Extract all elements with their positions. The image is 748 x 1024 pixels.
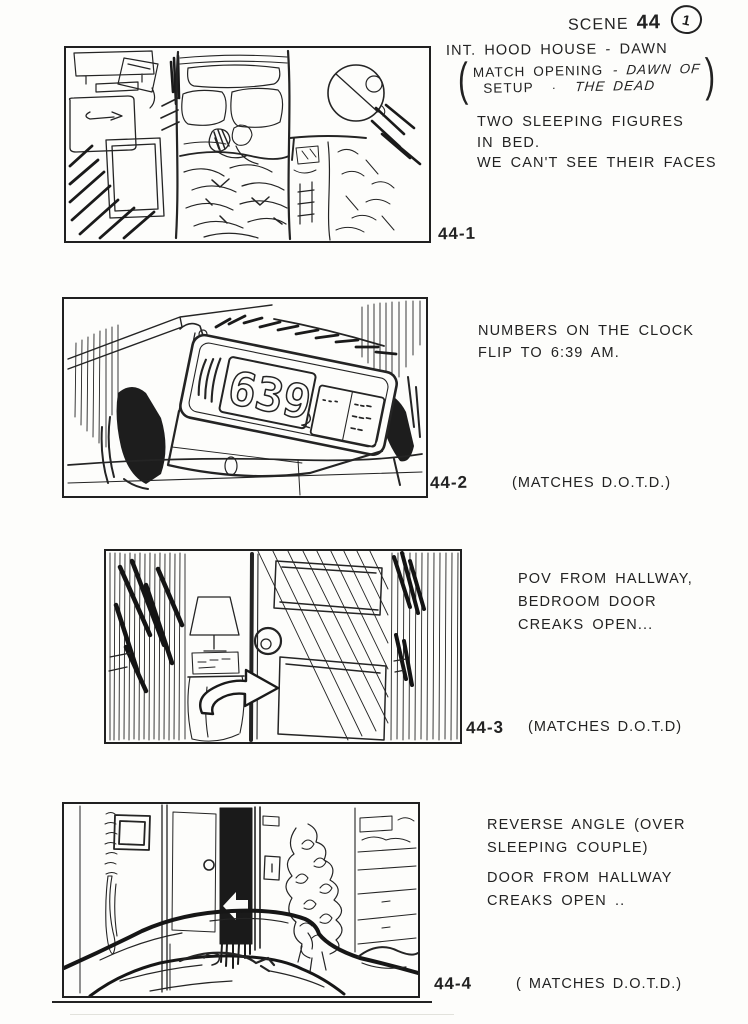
caption-line: IN BED. (477, 133, 717, 154)
caption-paragraph-gap (487, 860, 686, 867)
shot-label-44-2: 44-2 (430, 473, 468, 494)
scene-header: SCENE 44 (568, 11, 661, 36)
scene-word: SCENE (568, 16, 629, 35)
storyboard-panel-44-4 (62, 802, 420, 998)
storyboard-panel-44-1 (64, 46, 431, 243)
caption-shot-44-1: TWO SLEEPING FIGURES IN BED. WE CAN'T SE… (477, 112, 717, 174)
caption-line: REVERSE ANGLE (OVER (487, 814, 686, 837)
note-line2-right: THE DEAD (574, 78, 655, 95)
note-line2-left: SETUP (483, 80, 534, 97)
sketch-bedroom-reverse-angle (64, 804, 418, 996)
panel-4-underline (52, 1001, 432, 1003)
storyboard-panel-44-3 (104, 549, 462, 744)
caption-line: FLIP TO 6:39 AM. (478, 342, 694, 364)
sketch-hallway-pov-door (106, 551, 460, 742)
caption-shot-44-3: POV FROM HALLWAY, BEDROOM DOOR CREAKS OP… (518, 568, 693, 637)
match-note-44-4: ( MATCHES D.O.T.D.) (516, 976, 682, 992)
shot-label-44-4: 44-4 (434, 974, 472, 995)
page-number: 1 (681, 11, 692, 28)
caption-line: SLEEPING COUPLE) (487, 837, 686, 860)
caption-line: DOOR FROM HALLWAY (487, 867, 686, 890)
sketch-bedroom-overhead-view (66, 48, 429, 241)
caption-line: BEDROOM DOOR (518, 591, 693, 614)
caption-shot-44-4: REVERSE ANGLE (OVER SLEEPING COUPLE) DOO… (487, 814, 686, 913)
shot-label-44-1: 44-1 (438, 224, 476, 245)
close-paren: ) (705, 50, 717, 103)
note-dot: · (552, 80, 557, 96)
sketch-flip-clock-639: 639 (64, 299, 426, 496)
match-opening-note: ( MATCH OPENING - DAWN OF SETUP · THE DE… (458, 60, 717, 99)
match-note-44-2: (MATCHES D.O.T.D.) (512, 475, 671, 491)
scene-number: 44 (636, 11, 661, 34)
caption-line: POV FROM HALLWAY, (518, 568, 693, 591)
caption-line: TWO SLEEPING FIGURES (477, 112, 717, 133)
caption-line: CREAKS OPEN... (518, 614, 693, 637)
caption-line: NUMBERS ON THE CLOCK (478, 320, 694, 342)
open-paren: ( (458, 55, 470, 108)
scan-artifact-line (70, 1014, 454, 1015)
note-line1-right: - DAWN OF (613, 61, 702, 79)
caption-shot-44-2: NUMBERS ON THE CLOCK FLIP TO 6:39 AM. (478, 320, 694, 364)
shot-label-44-3: 44-3 (466, 718, 504, 739)
storyboard-panel-44-2: 639 (62, 297, 428, 498)
scene-heading: INT. HOOD HOUSE - DAWN (446, 41, 668, 59)
caption-line: CREAKS OPEN .. (487, 890, 686, 913)
page-number-circle: 1 (668, 2, 704, 37)
match-note-44-3: (MATCHES D.O.T.D) (528, 719, 682, 735)
caption-line: WE CAN'T SEE THEIR FACES (477, 153, 717, 174)
storyboard-page: SCENE 44 1 (0, 0, 748, 1024)
